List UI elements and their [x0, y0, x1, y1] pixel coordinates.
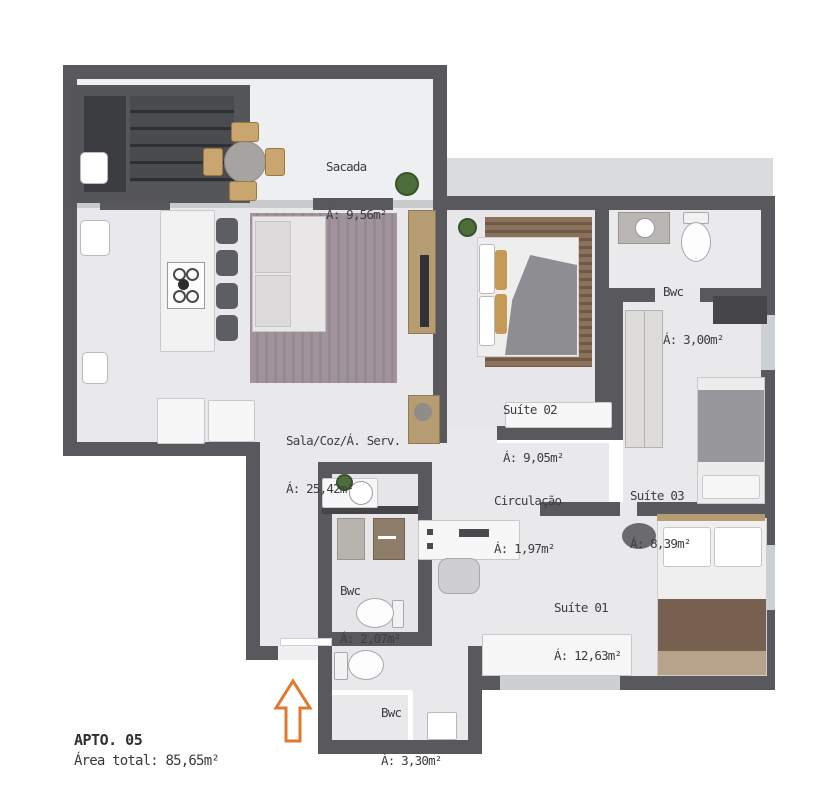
accent-pillow	[495, 294, 507, 334]
floorplan-canvas: Sacada Á: 9,56m² Bwc Á: 3,00m² Suíte 02 …	[0, 0, 829, 801]
pillow	[479, 244, 495, 294]
counter-block	[208, 400, 255, 442]
plant-icon	[458, 218, 477, 237]
room-name: Suíte 02	[503, 402, 564, 418]
room-name: Bwc	[663, 284, 724, 300]
room-label-suite03: Suíte 03 Á: 8,39m²	[630, 456, 691, 584]
room-label-bwc-suite01: Bwc Á: 3,30m²	[381, 673, 442, 801]
room-name: Circulação	[494, 493, 561, 509]
sideboard	[408, 395, 440, 444]
room-name: Sacada	[326, 159, 387, 175]
wall	[246, 442, 260, 660]
laundry-tub	[82, 352, 108, 384]
dining-chair	[265, 148, 285, 176]
room-label-sacada: Sacada Á: 9,56m²	[326, 127, 387, 255]
room-label-bwc-suite02: Bwc Á: 3,00m²	[663, 252, 724, 380]
floor-suite02-door-gap	[447, 426, 497, 443]
room-name: Bwc	[381, 705, 442, 721]
office-chair	[438, 558, 480, 594]
bar-stool	[216, 250, 238, 276]
kitchen-sink	[80, 220, 110, 256]
room-area: Á: 1,97m²	[494, 541, 561, 557]
suite03-bed	[697, 377, 765, 504]
bathroom-vanity	[618, 212, 670, 244]
cooktop	[167, 262, 205, 309]
counter-block	[157, 398, 205, 444]
balcony-sink	[80, 152, 108, 184]
wall	[609, 288, 655, 302]
wall	[63, 442, 260, 456]
dining-chair	[229, 181, 257, 201]
wardrobe	[625, 310, 663, 448]
wall	[246, 646, 278, 660]
apartment-title: APTO. 05	[74, 731, 142, 749]
room-label-suite01: Suíte 01 Á: 12,63m²	[554, 568, 621, 696]
bar-stool	[216, 283, 238, 309]
plant-icon	[395, 172, 419, 196]
room-area: Á: 8,39m²	[630, 536, 691, 552]
pillow	[479, 296, 495, 346]
room-name: Bwc	[340, 583, 401, 599]
entry-door-leaf	[280, 638, 332, 646]
dining-chair	[203, 148, 223, 176]
entrance-arrow-icon	[273, 678, 313, 744]
wall	[468, 646, 482, 754]
total-area-label: Área total: 85,65m²	[74, 753, 219, 769]
bar-stool	[216, 218, 238, 244]
dining-table	[224, 141, 266, 183]
sofa	[252, 216, 326, 332]
room-name: Suíte 01	[554, 600, 621, 616]
room-area: Á: 25,42m²	[286, 481, 400, 497]
dining-chair	[231, 122, 259, 142]
room-name: Sala/Coz/Á. Serv.	[286, 433, 400, 449]
room-label-sala: Sala/Coz/Á. Serv. Á: 25,42m²	[286, 401, 400, 529]
room-area: Á: 3,30m²	[381, 753, 442, 769]
roof-ledge	[447, 158, 773, 196]
room-area: Á: 12,63m²	[554, 648, 621, 664]
room-area: Á: 3,00m²	[663, 332, 724, 348]
wall	[433, 65, 447, 207]
room-area: Á: 2,07m²	[340, 631, 401, 647]
bar-stool	[216, 315, 238, 341]
room-area: Á: 9,56m²	[326, 207, 387, 223]
tv-icon	[420, 255, 429, 327]
room-name: Suíte 03	[630, 488, 691, 504]
wall	[433, 196, 775, 210]
room-label-circulacao: Circulação Á: 1,97m²	[494, 461, 561, 589]
room-label-bwc-social: Bwc Á: 2,07m²	[340, 551, 401, 679]
accent-pillow	[495, 250, 507, 290]
wall	[63, 65, 447, 79]
